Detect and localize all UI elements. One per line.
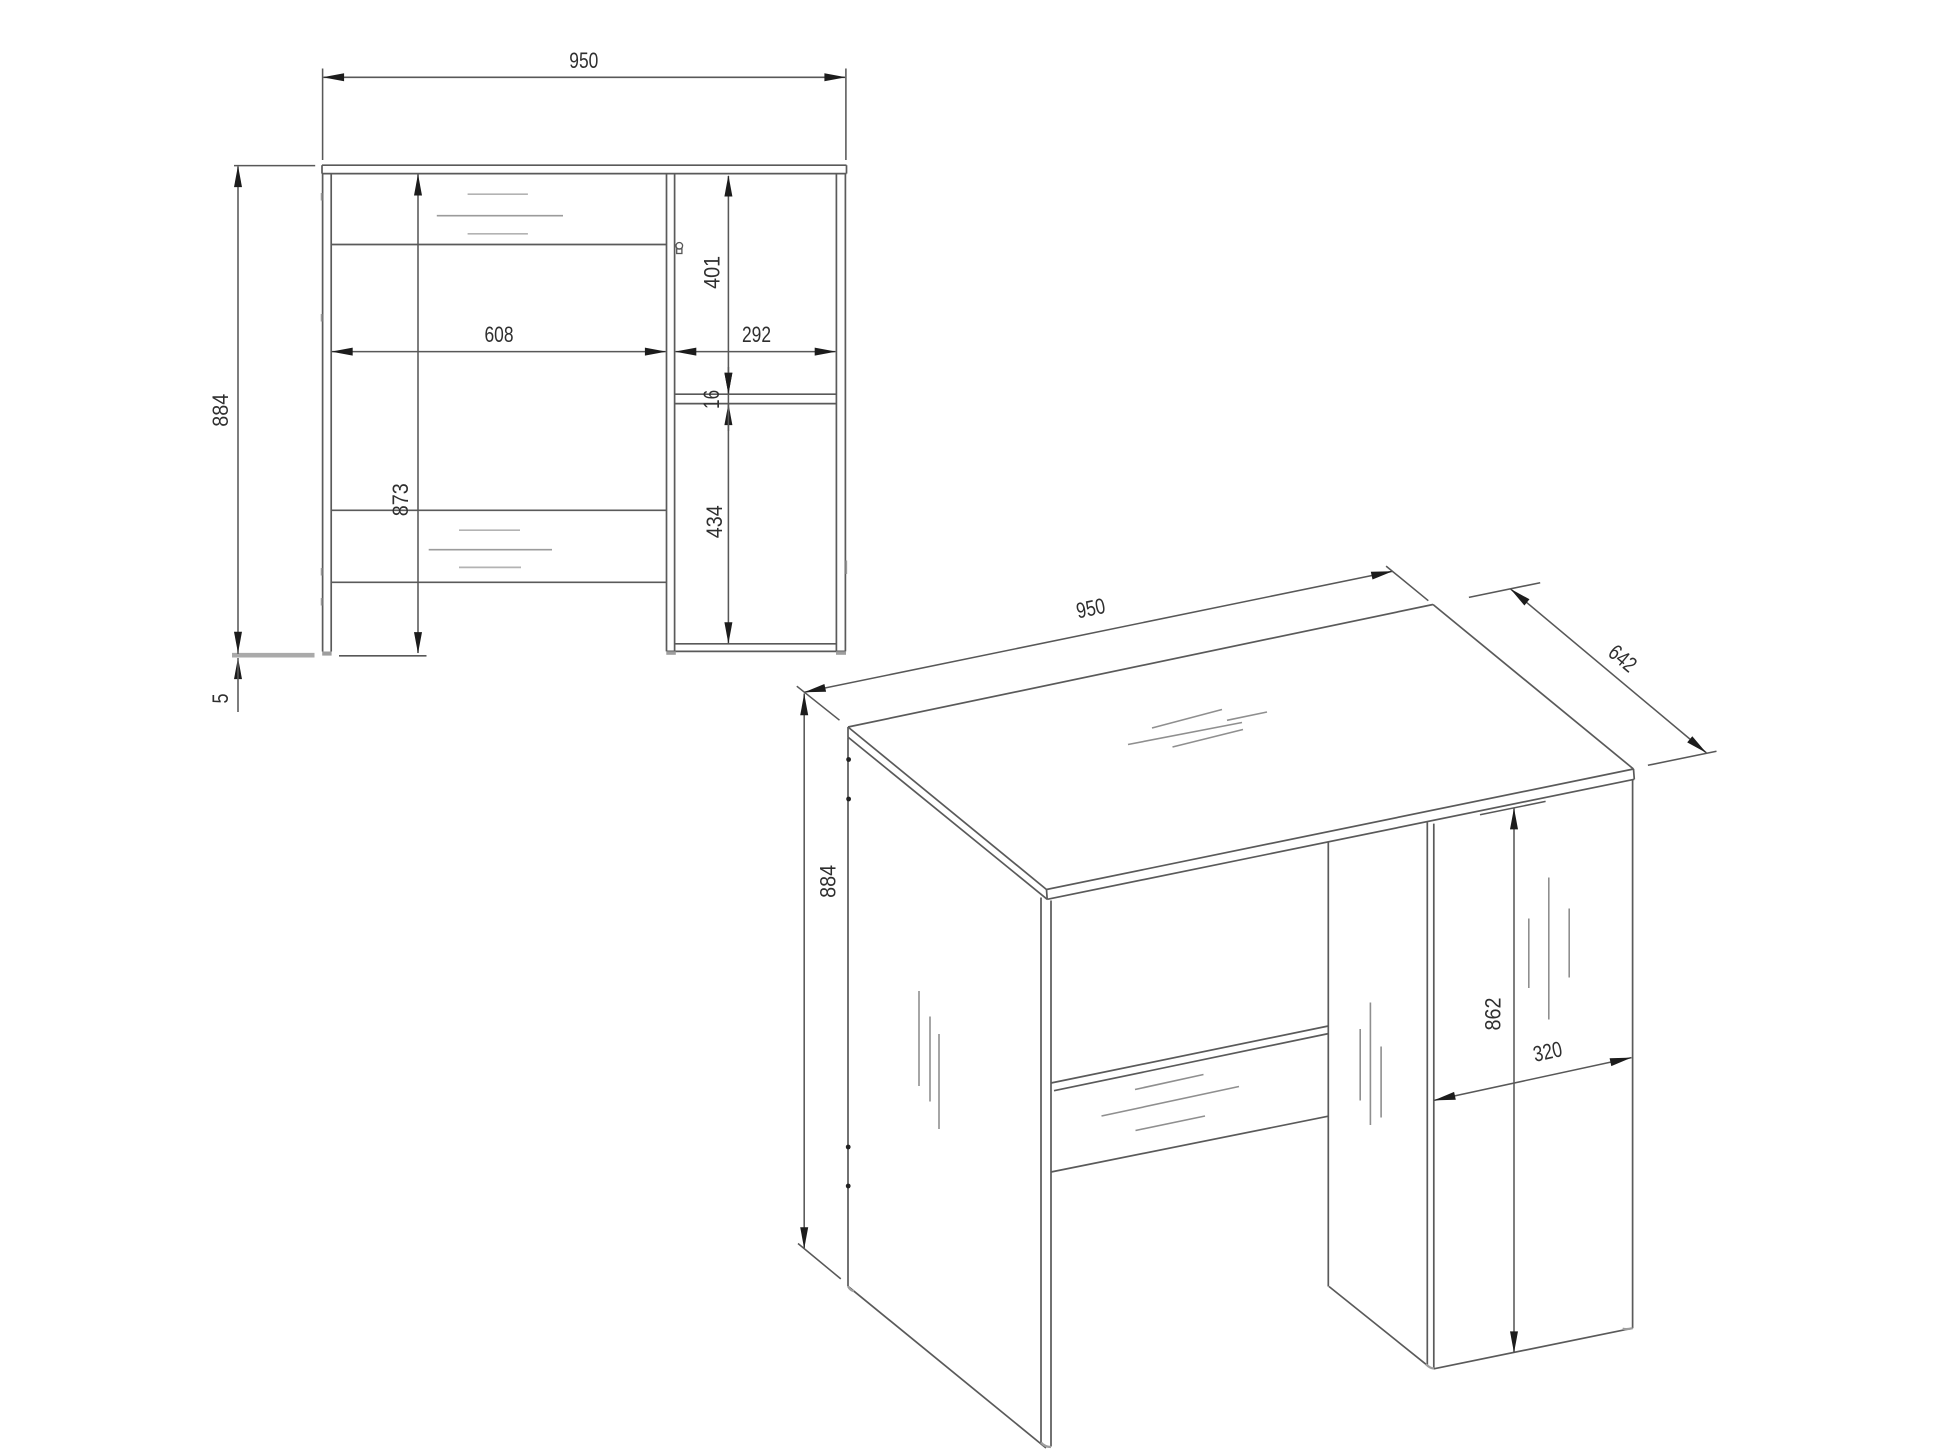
svg-text:16: 16 [699, 390, 724, 409]
svg-text:608: 608 [485, 322, 514, 347]
svg-text:884: 884 [816, 865, 841, 898]
svg-text:292: 292 [742, 322, 771, 347]
svg-text:950: 950 [569, 48, 598, 73]
svg-text:862: 862 [1480, 998, 1505, 1031]
svg-text:5: 5 [208, 694, 233, 704]
svg-text:884: 884 [208, 394, 233, 427]
svg-text:873: 873 [388, 483, 413, 516]
svg-text:401: 401 [700, 256, 725, 289]
svg-text:434: 434 [702, 505, 727, 538]
